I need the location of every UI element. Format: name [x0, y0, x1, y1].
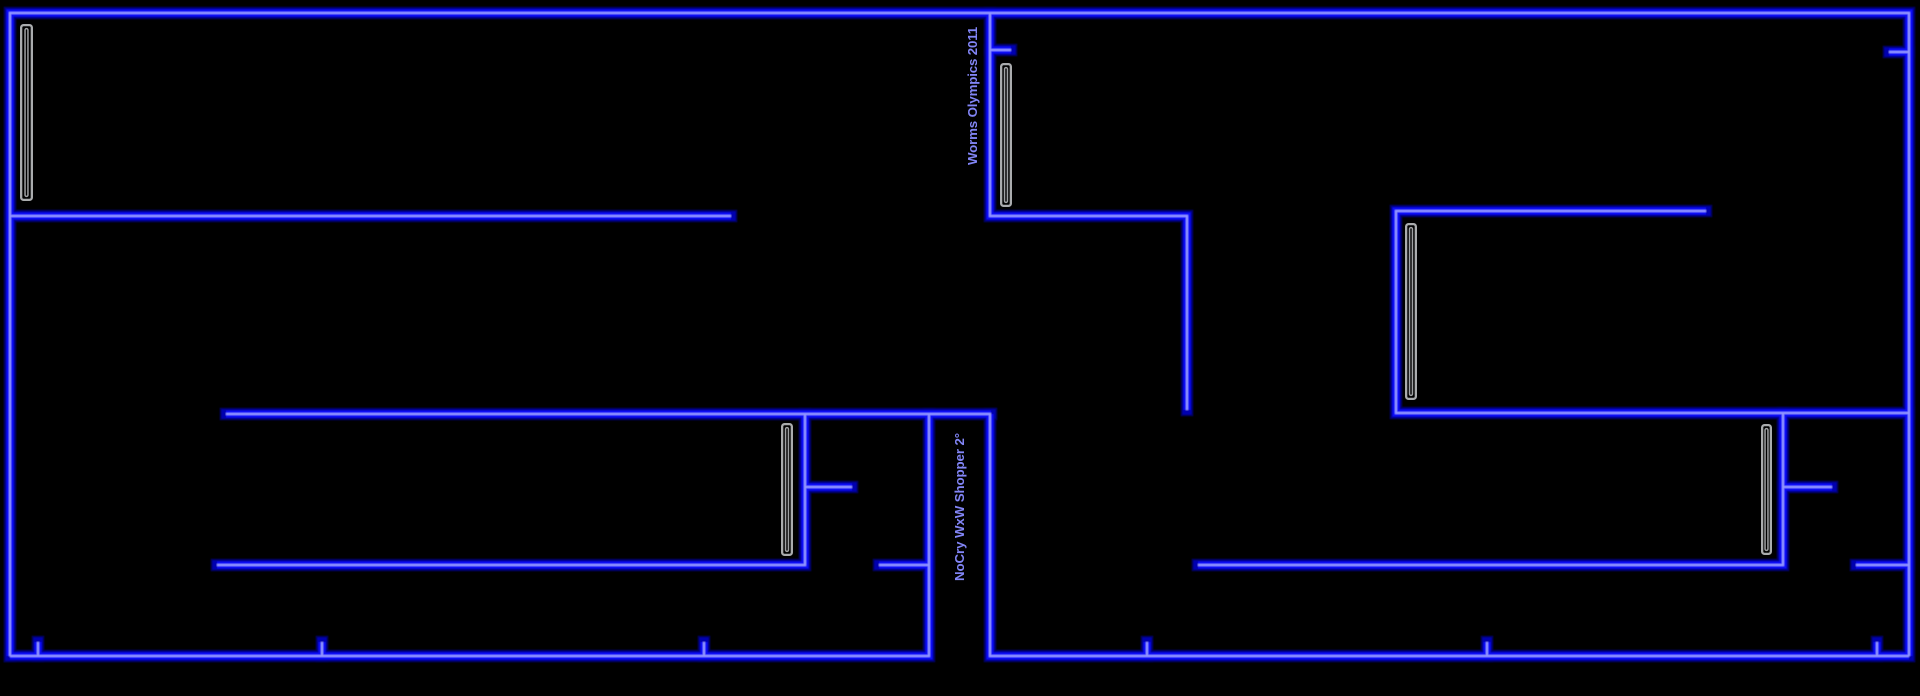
svg-text:NoCry WxW Shopper 2°: NoCry WxW Shopper 2° — [952, 433, 967, 581]
svg-text:Worms Olympics 2011: Worms Olympics 2011 — [965, 26, 980, 165]
